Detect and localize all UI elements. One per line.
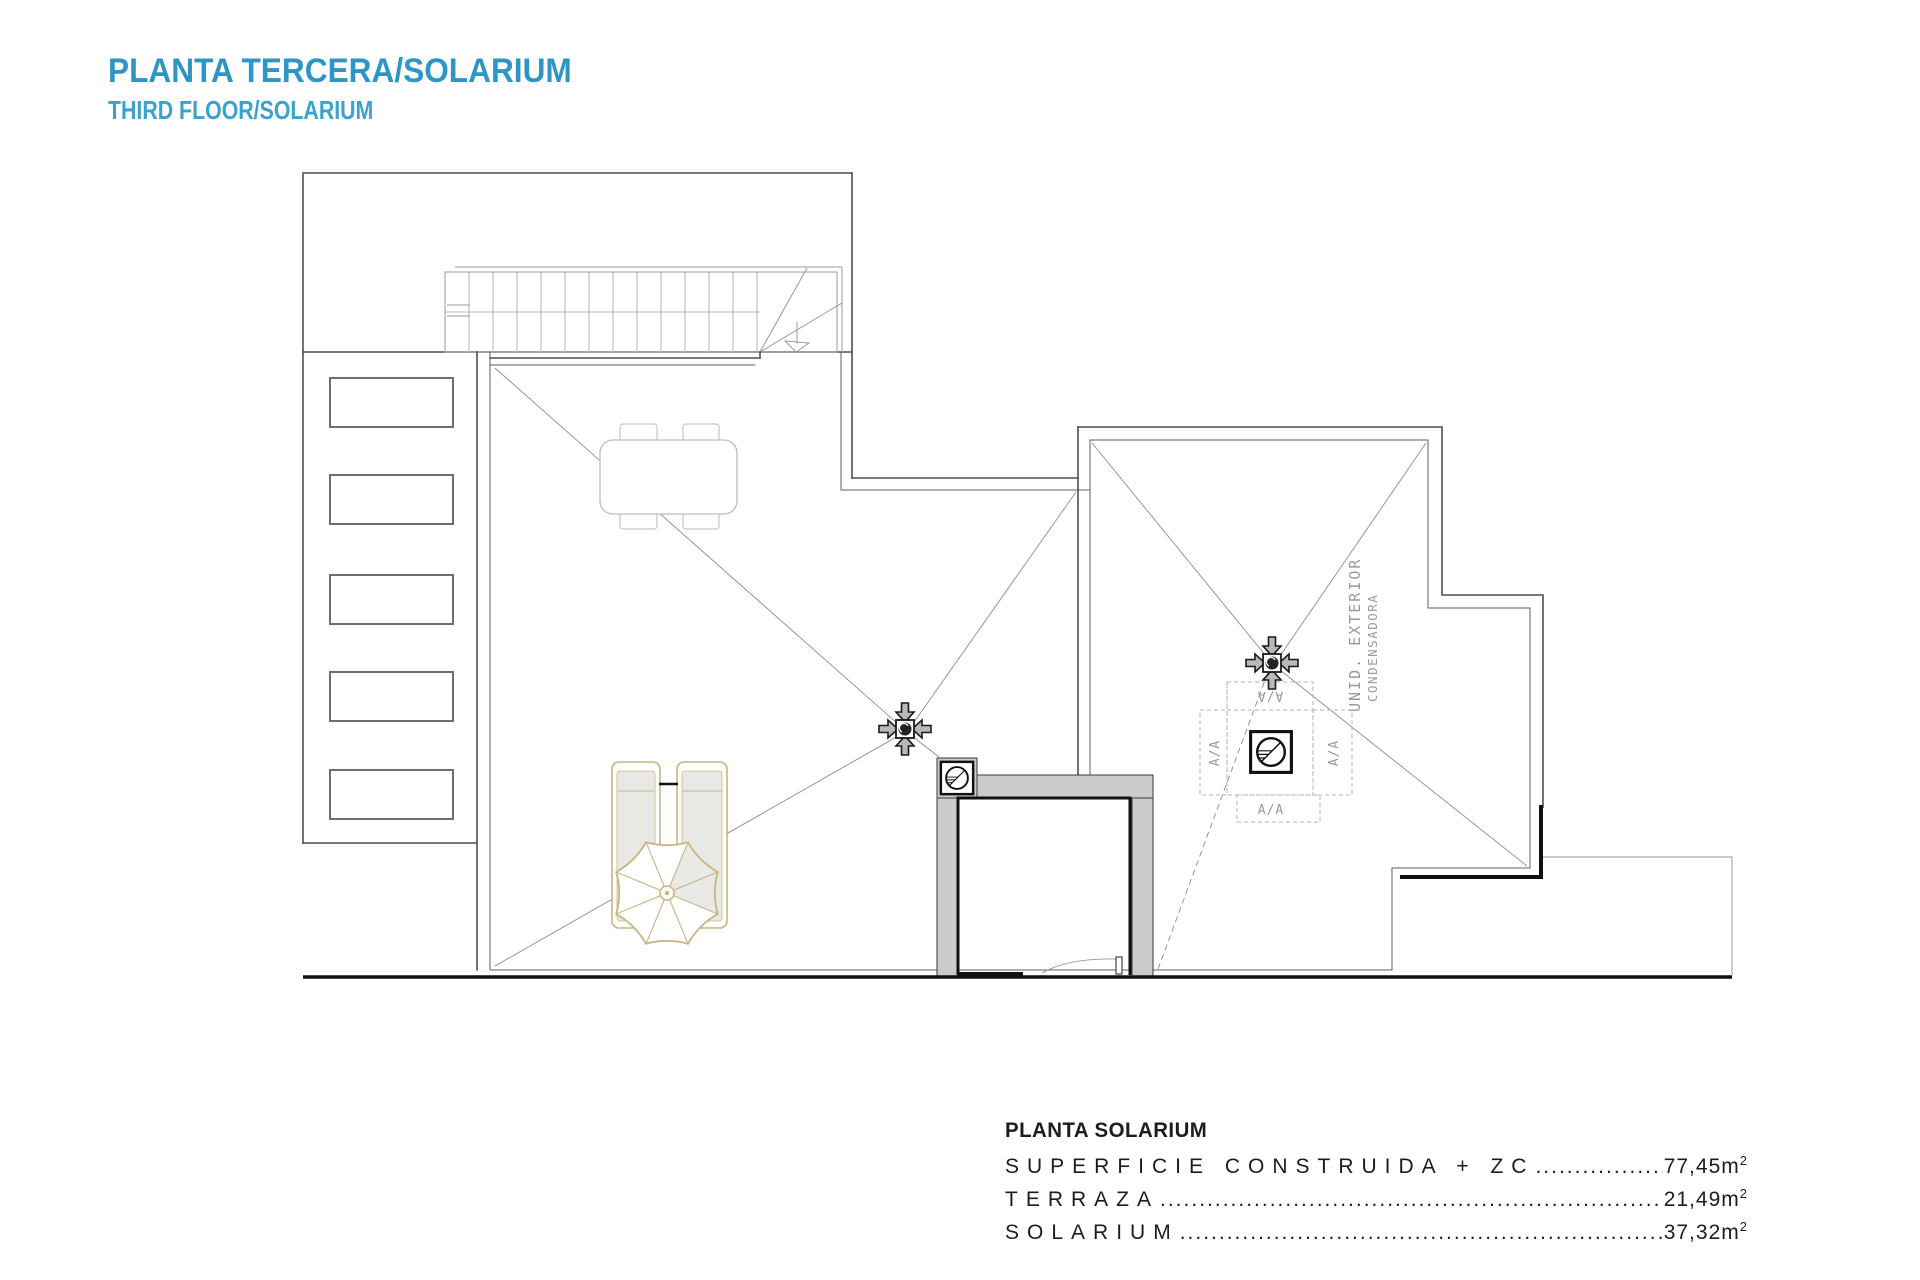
summary-row-sup: 2 (1740, 1219, 1747, 1234)
summary-row-label: SUPERFICIE CONSTRUIDA + ZC (1005, 1150, 1534, 1183)
ac-flap-label-right: A/A (1327, 740, 1342, 766)
slope-lines-solarium (1092, 443, 1527, 969)
dotted-leader (1180, 1216, 1663, 1249)
louver-windows (330, 378, 453, 819)
stair-direction-arrow-icon (785, 322, 809, 352)
ac-outdoor-unit: A/A A/A A/A A/A UNID. EXTERIOR CONDENSAD… (1200, 558, 1380, 822)
summary-row-label: TERRAZA (1005, 1183, 1159, 1216)
page-title: PLANTA TERCERA/SOLARIUM (108, 52, 572, 91)
elevator-door-leaf (1116, 957, 1122, 974)
title-block: PLANTA TERCERA/SOLARIUM THIRD FLOOR/SOLA… (108, 52, 607, 126)
summary-row-unit: m (1721, 1188, 1740, 1211)
floor-drain-icon (1246, 637, 1298, 689)
summary-row: TERRAZA21,49m2 (1005, 1183, 1747, 1216)
floorplan-page: PLANTA TERCERA/SOLARIUM THIRD FLOOR/SOLA… (0, 0, 1920, 1280)
louver-window (330, 575, 453, 624)
summary-row-value: 77,45 (1664, 1155, 1722, 1178)
summary-row-label: SOLARIUM (1005, 1216, 1179, 1249)
elevator-core (937, 758, 1153, 977)
summary-row: SUPERFICIE CONSTRUIDA + ZC77,45m2 (1005, 1150, 1747, 1183)
louver-window (330, 378, 453, 427)
stair-break-lines (760, 268, 842, 352)
extractor-fan-icon (941, 762, 973, 794)
patio-table-set (600, 424, 737, 529)
neighbor-roof-outline (1543, 857, 1732, 975)
patio-table (600, 440, 737, 514)
slope-lines-terrace (495, 368, 1076, 966)
area-summary: PLANTA SOLARIUM SUPERFICIE CONSTRUIDA + … (1005, 1118, 1747, 1249)
summary-row-unit: m (1721, 1155, 1740, 1178)
ac-flap-label-bottom: A/A (1258, 803, 1284, 818)
ac-flap-label-top: A/A (1257, 688, 1283, 703)
summary-row-sup: 2 (1740, 1186, 1747, 1201)
louver-window (330, 672, 453, 721)
summary-row-value: 21,49 (1664, 1188, 1722, 1211)
summary-row: SOLARIUM37,32m2 (1005, 1216, 1747, 1249)
ac-unit-label-line1: UNID. EXTERIOR (1346, 558, 1364, 712)
louver-window (330, 475, 453, 524)
elevator-door-swing (1042, 959, 1116, 973)
dotted-leader (1535, 1150, 1662, 1183)
staircase (445, 267, 842, 352)
dotted-leader (1160, 1183, 1663, 1216)
floor-drain-icon (879, 703, 931, 755)
floorplan-drawing: A/A A/A A/A A/A UNID. EXTERIOR CONDENSAD… (0, 0, 1920, 1280)
ac-unit-label-line2: CONDENSADORA (1365, 594, 1380, 702)
summary-row-value: 37,32 (1664, 1221, 1722, 1244)
summary-title: PLANTA SOLARIUM (1005, 1118, 1710, 1143)
ac-flap-label-left: A/A (1208, 740, 1223, 766)
condenser-fan-icon (1251, 732, 1292, 773)
summary-row-sup: 2 (1740, 1153, 1747, 1168)
louver-window (330, 770, 453, 819)
page-subtitle: THIRD FLOOR/SOLARIUM (108, 95, 517, 126)
summary-row-unit: m (1721, 1221, 1740, 1244)
